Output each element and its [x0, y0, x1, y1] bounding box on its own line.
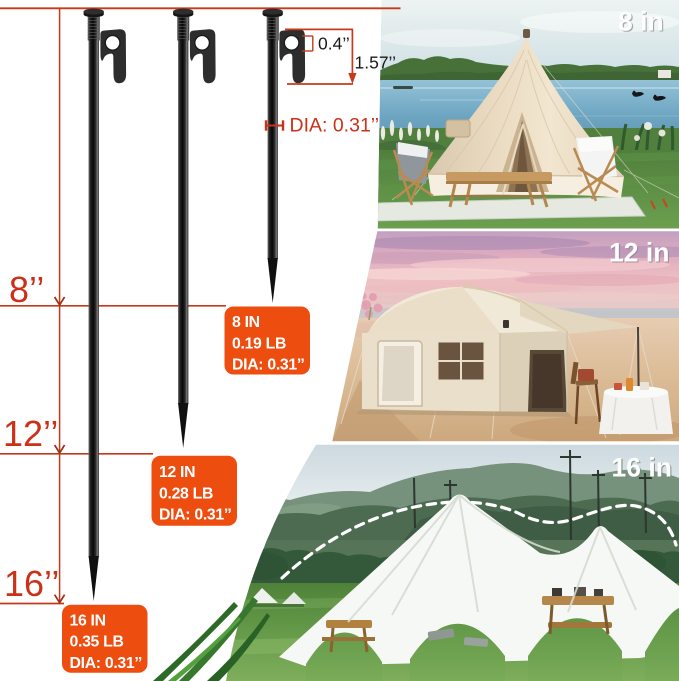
- svg-text:DIA: 0.31’’: DIA: 0.31’’: [232, 357, 305, 374]
- svg-text:0.4’’: 0.4’’: [318, 34, 350, 54]
- svg-text:8’’: 8’’: [9, 269, 44, 310]
- svg-text:0.28 LB: 0.28 LB: [159, 485, 213, 502]
- svg-text:16’’: 16’’: [4, 563, 59, 604]
- svg-text:DIA: 0.31’’: DIA: 0.31’’: [290, 115, 380, 137]
- svg-text:8 IN: 8 IN: [232, 314, 260, 331]
- svg-text:16 in: 16 in: [612, 453, 672, 483]
- svg-text:0.19 LB: 0.19 LB: [232, 335, 286, 352]
- svg-text:DIA: 0.31’’: DIA: 0.31’’: [70, 655, 143, 672]
- svg-text:0.35 LB: 0.35 LB: [70, 634, 124, 651]
- svg-text:8 in: 8 in: [618, 7, 664, 37]
- svg-text:12 IN: 12 IN: [159, 464, 195, 481]
- svg-text:1.57’’: 1.57’’: [355, 53, 397, 73]
- svg-text:16 IN: 16 IN: [70, 612, 106, 629]
- svg-text:12 in: 12 in: [609, 238, 669, 268]
- svg-text:DIA: 0.31’’: DIA: 0.31’’: [159, 507, 232, 524]
- svg-text:12’’: 12’’: [3, 413, 58, 454]
